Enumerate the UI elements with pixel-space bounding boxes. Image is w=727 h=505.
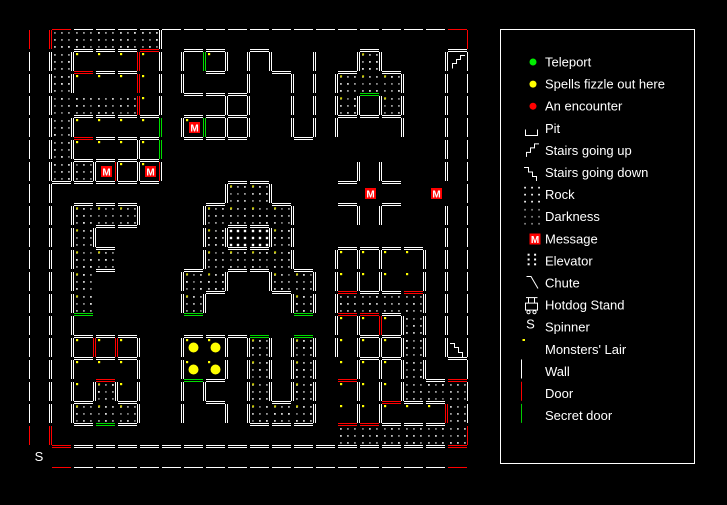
svg-text:M: M <box>531 235 539 246</box>
svg-text:Message: Message <box>545 231 598 246</box>
svg-text:Stairs going down: Stairs going down <box>545 165 648 180</box>
svg-text:M: M <box>190 124 198 135</box>
svg-text:Teleport: Teleport <box>545 55 592 70</box>
svg-text:Stairs going up: Stairs going up <box>545 143 632 158</box>
svg-text:Secret door: Secret door <box>545 408 613 423</box>
svg-text:Hotdog Stand: Hotdog Stand <box>545 298 625 313</box>
svg-text:M: M <box>432 190 440 201</box>
svg-text:Wall: Wall <box>545 364 570 379</box>
svg-text:Pit: Pit <box>545 121 561 136</box>
svg-text:Chute: Chute <box>545 276 580 291</box>
svg-text:Door: Door <box>545 386 574 401</box>
svg-text:Spinner: Spinner <box>545 320 590 335</box>
svg-text:Rock: Rock <box>545 187 575 202</box>
svg-text:S: S <box>526 317 535 332</box>
svg-text:Darkness: Darkness <box>545 209 600 224</box>
svg-text:Spells fizzle out here: Spells fizzle out here <box>545 77 665 92</box>
svg-text:M: M <box>146 168 154 179</box>
svg-text:M: M <box>366 190 374 201</box>
svg-text:An encounter: An encounter <box>545 99 623 114</box>
svg-text:M: M <box>102 168 110 179</box>
svg-text:Monsters' Lair: Monsters' Lair <box>545 342 627 357</box>
svg-text:S: S <box>35 449 44 464</box>
svg-text:Elevator: Elevator <box>545 253 593 268</box>
